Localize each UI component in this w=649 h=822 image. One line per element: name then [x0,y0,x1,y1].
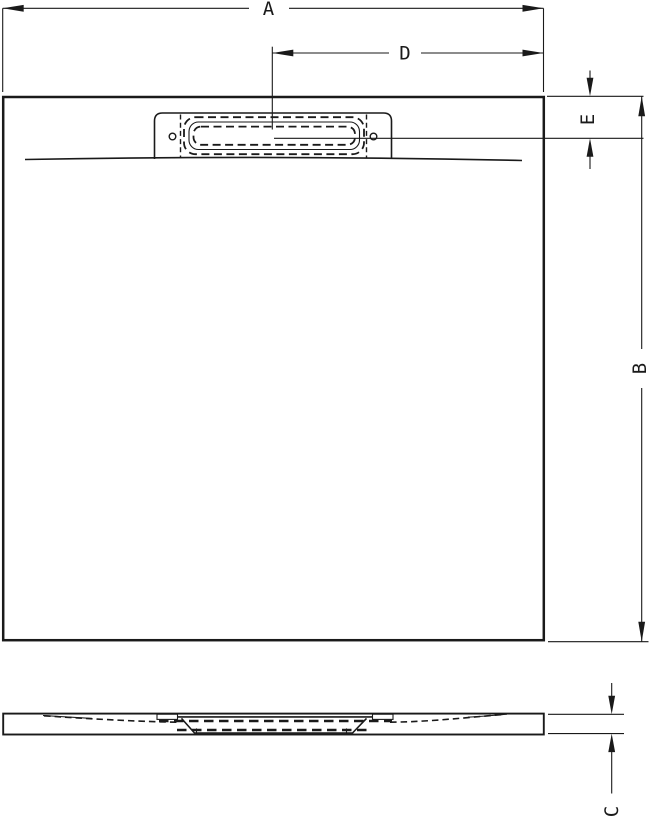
section-slope-hidden-right [390,714,504,722]
drain-assembly [155,113,392,159]
dim-d-label: D [399,43,410,65]
dim-b-arrowhead-bottom [638,622,645,642]
dim-b-arrowhead-top [638,96,645,116]
dim-e-arrowhead-bottom [587,138,594,157]
dim-b-label: B [629,363,649,374]
dim-a: A [3,0,544,92]
section-drain-tab-left [157,714,178,719]
plan-outline [3,97,544,640]
dim-c: C [548,683,624,817]
dim-d-arrowhead-right [523,50,544,57]
drain-screw-hole-left [169,133,176,140]
section-view [3,714,544,735]
technical-drawing: A D [0,0,649,822]
dim-b: B [548,96,649,641]
waterline-curve [25,157,522,160]
dim-a-arrowhead-left [3,5,24,12]
dim-a-label: A [263,0,275,20]
plan-view [3,97,544,640]
dim-a-arrowhead-right [523,5,544,12]
drain-grate-hidden-outline [194,127,356,145]
dim-e-arrowhead-top [587,78,594,97]
drawing-page: A D [0,0,649,822]
dim-c-label: C [601,806,623,817]
dim-d-arrowhead-left [272,50,293,57]
section-drain-tab-right [373,714,394,719]
dim-c-arrowhead-bottom [608,734,615,753]
drain-channel-hidden-outline [184,117,364,154]
dim-e-label: E [577,114,599,125]
dim-c-arrowhead-top [608,696,615,715]
